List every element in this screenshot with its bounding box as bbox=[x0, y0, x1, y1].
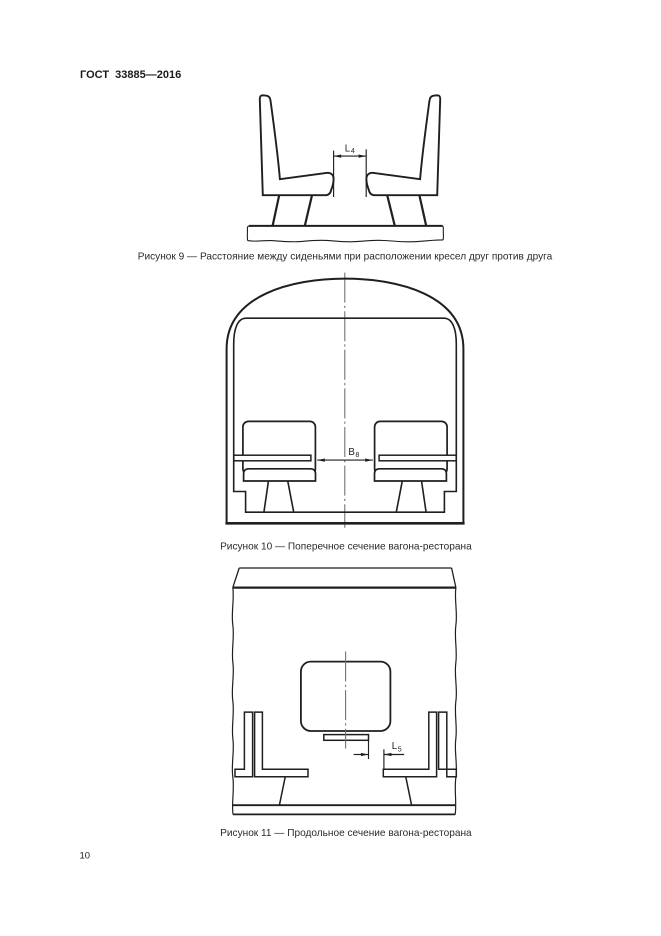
svg-text:8: 8 bbox=[356, 452, 360, 459]
svg-text:Рисунок 11 — Продольное сечени: Рисунок 11 — Продольное сечение вагона-р… bbox=[220, 828, 472, 839]
svg-text:Рисунок 10 — Поперечное сечени: Рисунок 10 — Поперечное сечение вагона-р… bbox=[220, 542, 472, 553]
svg-text:ГОСТ 33885—2016: ГОСТ 33885—2016 bbox=[80, 69, 181, 81]
svg-text:Рисунок 9 — Расстояние между с: Рисунок 9 — Расстояние между сиденьями п… bbox=[138, 252, 553, 263]
svg-text:L: L bbox=[345, 144, 351, 155]
svg-text:B: B bbox=[348, 447, 354, 458]
svg-text:10: 10 bbox=[80, 851, 91, 862]
svg-text:4: 4 bbox=[351, 148, 355, 155]
svg-text:5: 5 bbox=[398, 747, 402, 754]
